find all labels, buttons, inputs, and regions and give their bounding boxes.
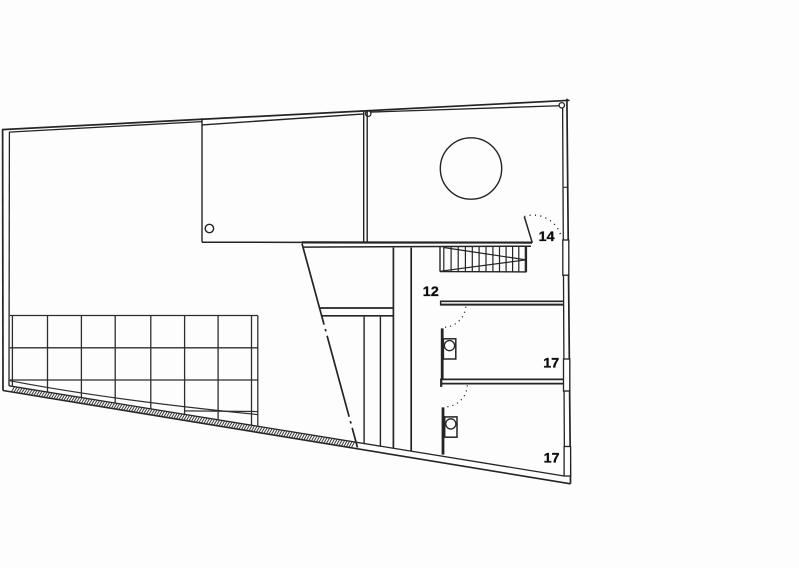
- svg-text:17: 17: [544, 450, 560, 466]
- svg-text:14: 14: [539, 229, 555, 245]
- svg-text:17: 17: [543, 356, 559, 372]
- svg-text:12: 12: [423, 284, 439, 300]
